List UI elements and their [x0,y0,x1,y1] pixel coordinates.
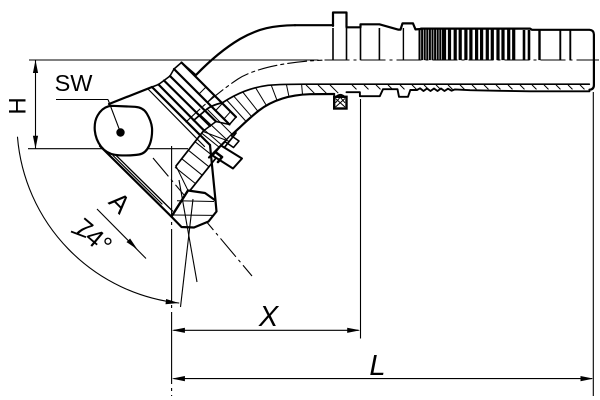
svg-text:SW: SW [55,70,94,96]
svg-text:L: L [369,350,385,382]
svg-text:H: H [5,97,32,114]
svg-text:X: X [258,301,280,333]
